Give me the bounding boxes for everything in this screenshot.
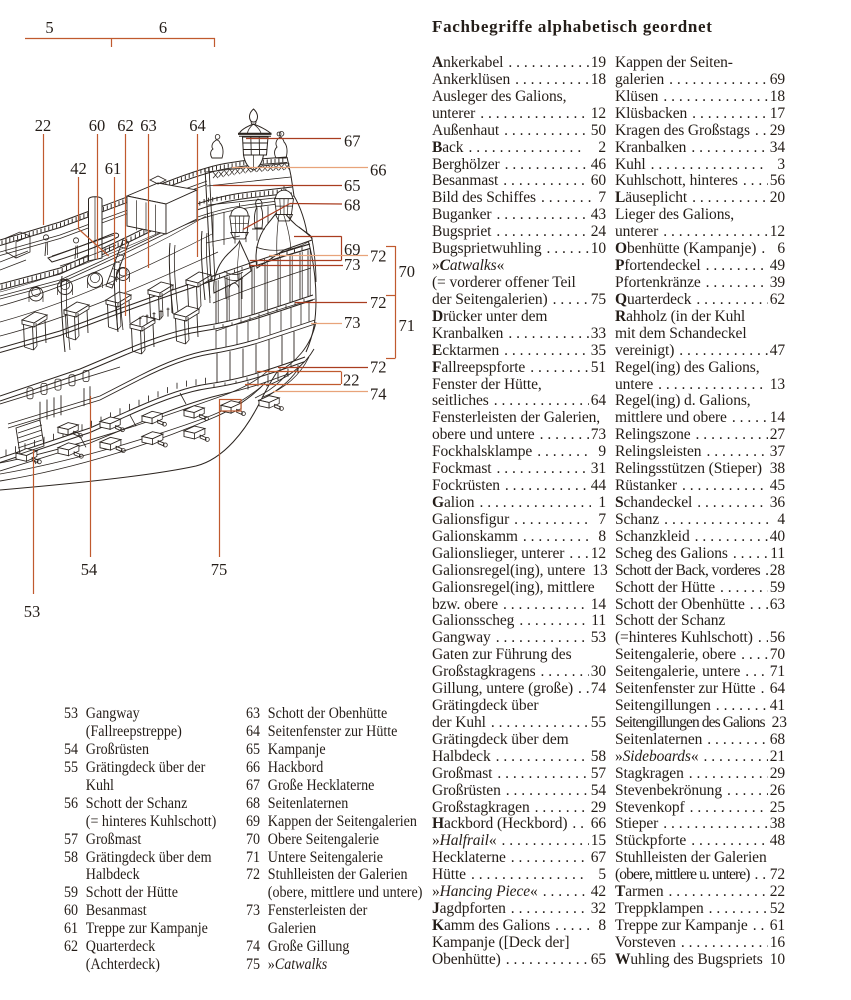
svg-text:54: 54 bbox=[81, 560, 98, 579]
svg-text:6: 6 bbox=[159, 18, 167, 37]
svg-text:63: 63 bbox=[140, 116, 157, 135]
svg-text:22: 22 bbox=[343, 371, 360, 390]
svg-text:62: 62 bbox=[117, 116, 134, 135]
svg-text:22: 22 bbox=[35, 116, 52, 135]
svg-text:73: 73 bbox=[344, 313, 361, 332]
svg-text:66: 66 bbox=[370, 161, 387, 180]
svg-text:74: 74 bbox=[370, 385, 387, 404]
svg-text:72: 72 bbox=[370, 247, 387, 266]
svg-text:5: 5 bbox=[45, 18, 53, 37]
svg-text:71: 71 bbox=[399, 316, 416, 335]
svg-text:53: 53 bbox=[24, 602, 41, 621]
svg-text:65: 65 bbox=[344, 176, 361, 195]
svg-text:42: 42 bbox=[70, 159, 87, 178]
svg-text:75: 75 bbox=[211, 560, 228, 579]
svg-text:68: 68 bbox=[344, 196, 361, 215]
svg-text:72: 72 bbox=[370, 358, 387, 377]
svg-text:64: 64 bbox=[189, 116, 206, 135]
svg-text:67: 67 bbox=[344, 132, 361, 151]
svg-text:60: 60 bbox=[89, 116, 106, 135]
svg-text:61: 61 bbox=[105, 159, 122, 178]
svg-text:73: 73 bbox=[344, 255, 361, 274]
svg-text:72: 72 bbox=[370, 293, 387, 312]
svg-text:70: 70 bbox=[399, 262, 416, 281]
